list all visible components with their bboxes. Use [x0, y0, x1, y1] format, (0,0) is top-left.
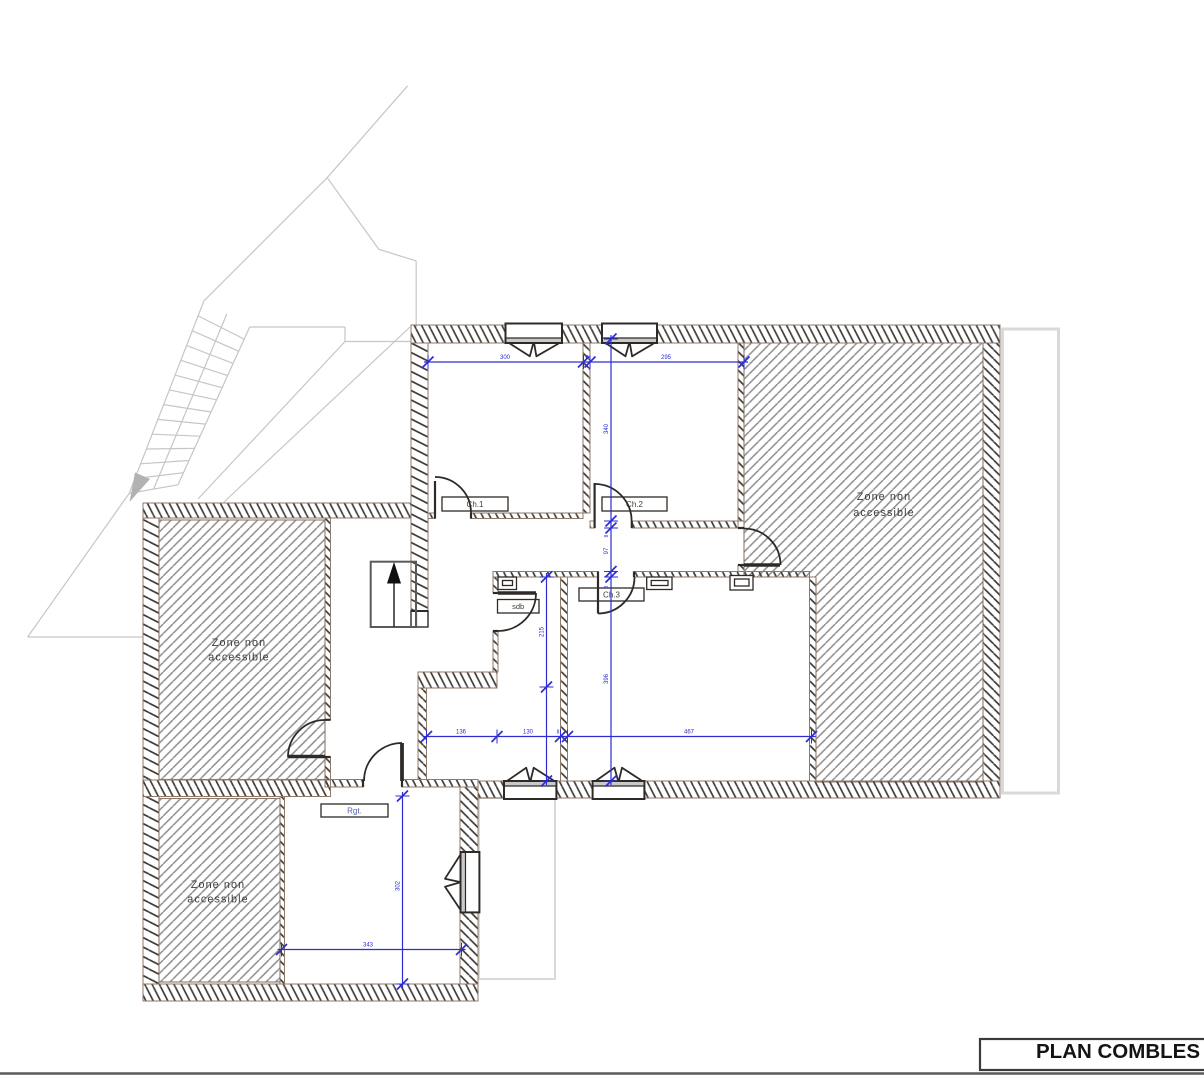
svg-text:accessible: accessible	[208, 652, 269, 664]
svg-text:8: 8	[557, 730, 560, 736]
svg-text:467: 467	[684, 730, 695, 736]
svg-text:accessible: accessible	[853, 507, 914, 519]
svg-text:97: 97	[604, 547, 610, 554]
svg-text:302: 302	[396, 880, 402, 891]
svg-text:215: 215	[540, 626, 546, 637]
svg-text:300: 300	[500, 355, 511, 361]
svg-text:295: 295	[661, 355, 672, 361]
svg-text:Zone non: Zone non	[857, 491, 911, 503]
svg-text:136: 136	[456, 730, 467, 736]
svg-text:130: 130	[523, 730, 534, 736]
svg-text:343: 343	[363, 943, 374, 949]
svg-text:accessible: accessible	[187, 894, 248, 906]
svg-text:8: 8	[586, 355, 589, 361]
svg-text:sdb: sdb	[512, 602, 524, 611]
svg-text:Zone non: Zone non	[212, 637, 266, 649]
svg-text:Rgt.: Rgt.	[347, 807, 362, 816]
svg-text:8: 8	[604, 585, 610, 588]
svg-text:396: 396	[604, 673, 610, 684]
svg-text:340: 340	[604, 423, 610, 434]
svg-text:Ch.3: Ch.3	[603, 591, 620, 600]
svg-text:8: 8	[604, 534, 610, 537]
svg-text:PLAN COMBLES ET: PLAN COMBLES ET	[1036, 1040, 1204, 1063]
svg-text:Zone non: Zone non	[191, 879, 245, 891]
